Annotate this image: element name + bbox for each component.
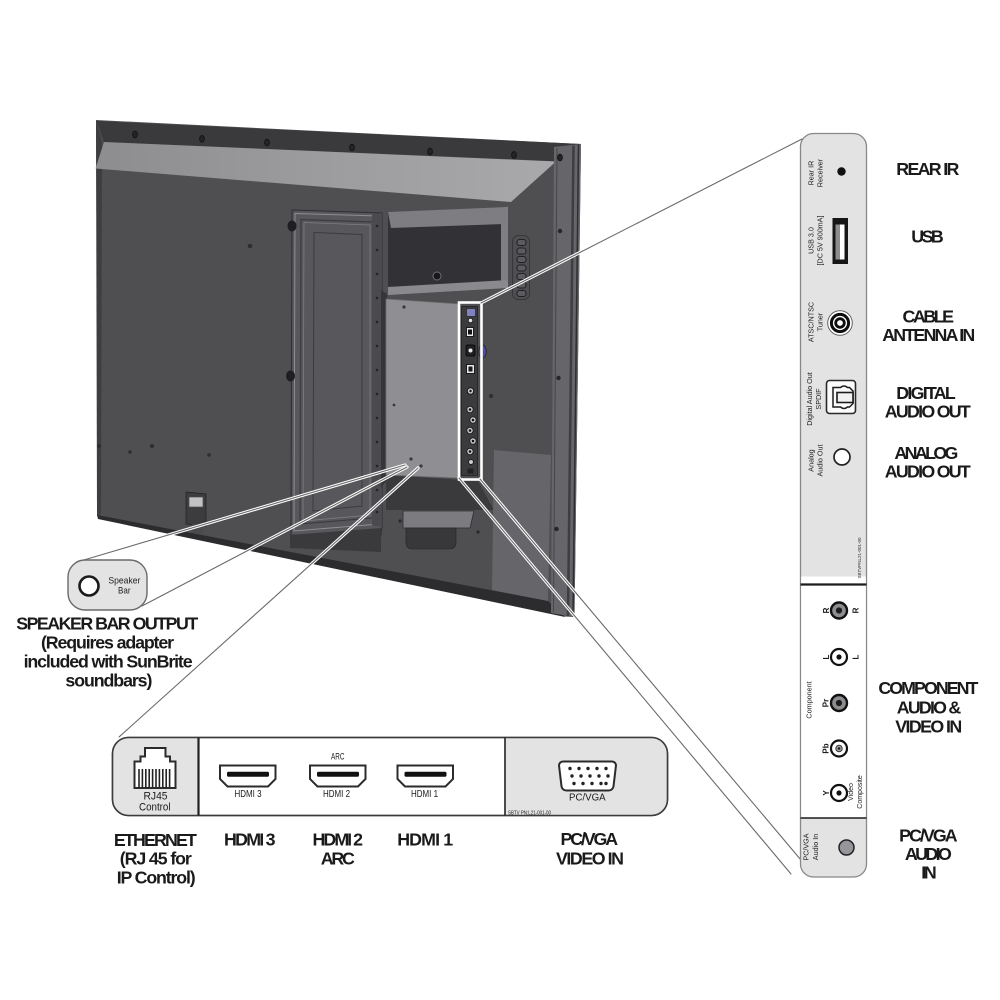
svg-text:COMPONENT: COMPONENT bbox=[878, 678, 978, 698]
svg-text:Component: Component bbox=[805, 681, 814, 718]
svg-text:R: R bbox=[851, 607, 860, 613]
svg-text:DIGITAL: DIGITAL bbox=[896, 383, 956, 403]
svg-text:PC/VGA: PC/VGA bbox=[561, 829, 619, 849]
svg-text:SBTVPNL21-001-00: SBTVPNL21-001-00 bbox=[857, 537, 862, 579]
svg-text:Audio Out: Audio Out bbox=[816, 445, 825, 477]
svg-text:PC/VGA: PC/VGA bbox=[569, 793, 606, 804]
svg-text:VIDEO IN: VIDEO IN bbox=[556, 849, 624, 869]
svg-text:Speaker: Speaker bbox=[108, 576, 140, 586]
svg-text:ATSC/NTSC: ATSC/NTSC bbox=[807, 302, 816, 342]
svg-text:AUDIO: AUDIO bbox=[905, 844, 952, 864]
svg-text:SPEAKER BAR OUTPUT: SPEAKER BAR OUTPUT bbox=[16, 614, 198, 634]
svg-text:Y: Y bbox=[822, 790, 831, 796]
svg-text:IP Control): IP Control) bbox=[117, 867, 196, 887]
svg-text:HDMI 1: HDMI 1 bbox=[411, 789, 438, 800]
svg-text:Audio In: Audio In bbox=[811, 834, 820, 860]
svg-text:AUDIO OUT: AUDIO OUT bbox=[885, 462, 971, 482]
svg-text:AUDIO &: AUDIO & bbox=[897, 698, 962, 718]
svg-text:(RJ 45 for: (RJ 45 for bbox=[120, 849, 192, 869]
svg-text:AUDIO OUT: AUDIO OUT bbox=[885, 401, 971, 421]
svg-text:IN: IN bbox=[921, 863, 937, 883]
svg-text:R: R bbox=[822, 607, 831, 613]
svg-text:L: L bbox=[851, 654, 860, 659]
svg-text:Receiver: Receiver bbox=[816, 158, 825, 187]
svg-text:HDMI 3: HDMI 3 bbox=[224, 830, 276, 850]
svg-text:Rear IR: Rear IR bbox=[807, 161, 816, 186]
svg-text:Bar: Bar bbox=[118, 585, 131, 595]
svg-text:USB 3.0: USB 3.0 bbox=[807, 227, 816, 254]
svg-text:ANTENNA IN: ANTENNA IN bbox=[882, 325, 975, 345]
svg-text:PC/VGA: PC/VGA bbox=[899, 825, 958, 845]
svg-text:Analog: Analog bbox=[807, 449, 816, 471]
svg-text:ANALOG: ANALOG bbox=[894, 443, 958, 463]
svg-text:VIDEO IN: VIDEO IN bbox=[895, 717, 962, 737]
svg-text:HDMI 2: HDMI 2 bbox=[323, 789, 350, 800]
svg-text:REAR IR: REAR IR bbox=[896, 159, 959, 179]
svg-text:CABLE: CABLE bbox=[903, 306, 955, 326]
svg-text:HDMI 1: HDMI 1 bbox=[397, 830, 453, 850]
svg-text:USB: USB bbox=[911, 227, 944, 247]
svg-text:included with SunBrite: included with SunBrite bbox=[24, 651, 193, 671]
svg-text:ARC: ARC bbox=[331, 752, 345, 763]
svg-text:(Requires adapter: (Requires adapter bbox=[41, 632, 174, 652]
svg-text:ETHERNET: ETHERNET bbox=[114, 830, 197, 850]
svg-text:soundbars): soundbars) bbox=[65, 670, 152, 690]
svg-text:Video: Video bbox=[848, 783, 855, 801]
svg-text:Composite: Composite bbox=[857, 775, 864, 809]
svg-text:Digital Audio Out: Digital Audio Out bbox=[805, 372, 814, 426]
svg-text:Tuner: Tuner bbox=[816, 312, 825, 331]
svg-text:HDMI 2: HDMI 2 bbox=[313, 830, 364, 850]
svg-text:SBTV PN:L21-001-00: SBTV PN:L21-001-00 bbox=[508, 811, 551, 817]
svg-text:SPDIF: SPDIF bbox=[814, 388, 823, 410]
svg-text:Pr: Pr bbox=[821, 699, 830, 707]
svg-text:L: L bbox=[822, 654, 831, 659]
svg-text:ARC: ARC bbox=[321, 849, 355, 869]
svg-text:HDMI 3: HDMI 3 bbox=[235, 789, 262, 800]
svg-text:Control: Control bbox=[139, 802, 171, 814]
svg-text:PC/VGA: PC/VGA bbox=[802, 833, 811, 860]
svg-text:Pb: Pb bbox=[821, 743, 830, 753]
svg-text:[DC 5V 900mA]: [DC 5V 900mA] bbox=[816, 216, 825, 266]
